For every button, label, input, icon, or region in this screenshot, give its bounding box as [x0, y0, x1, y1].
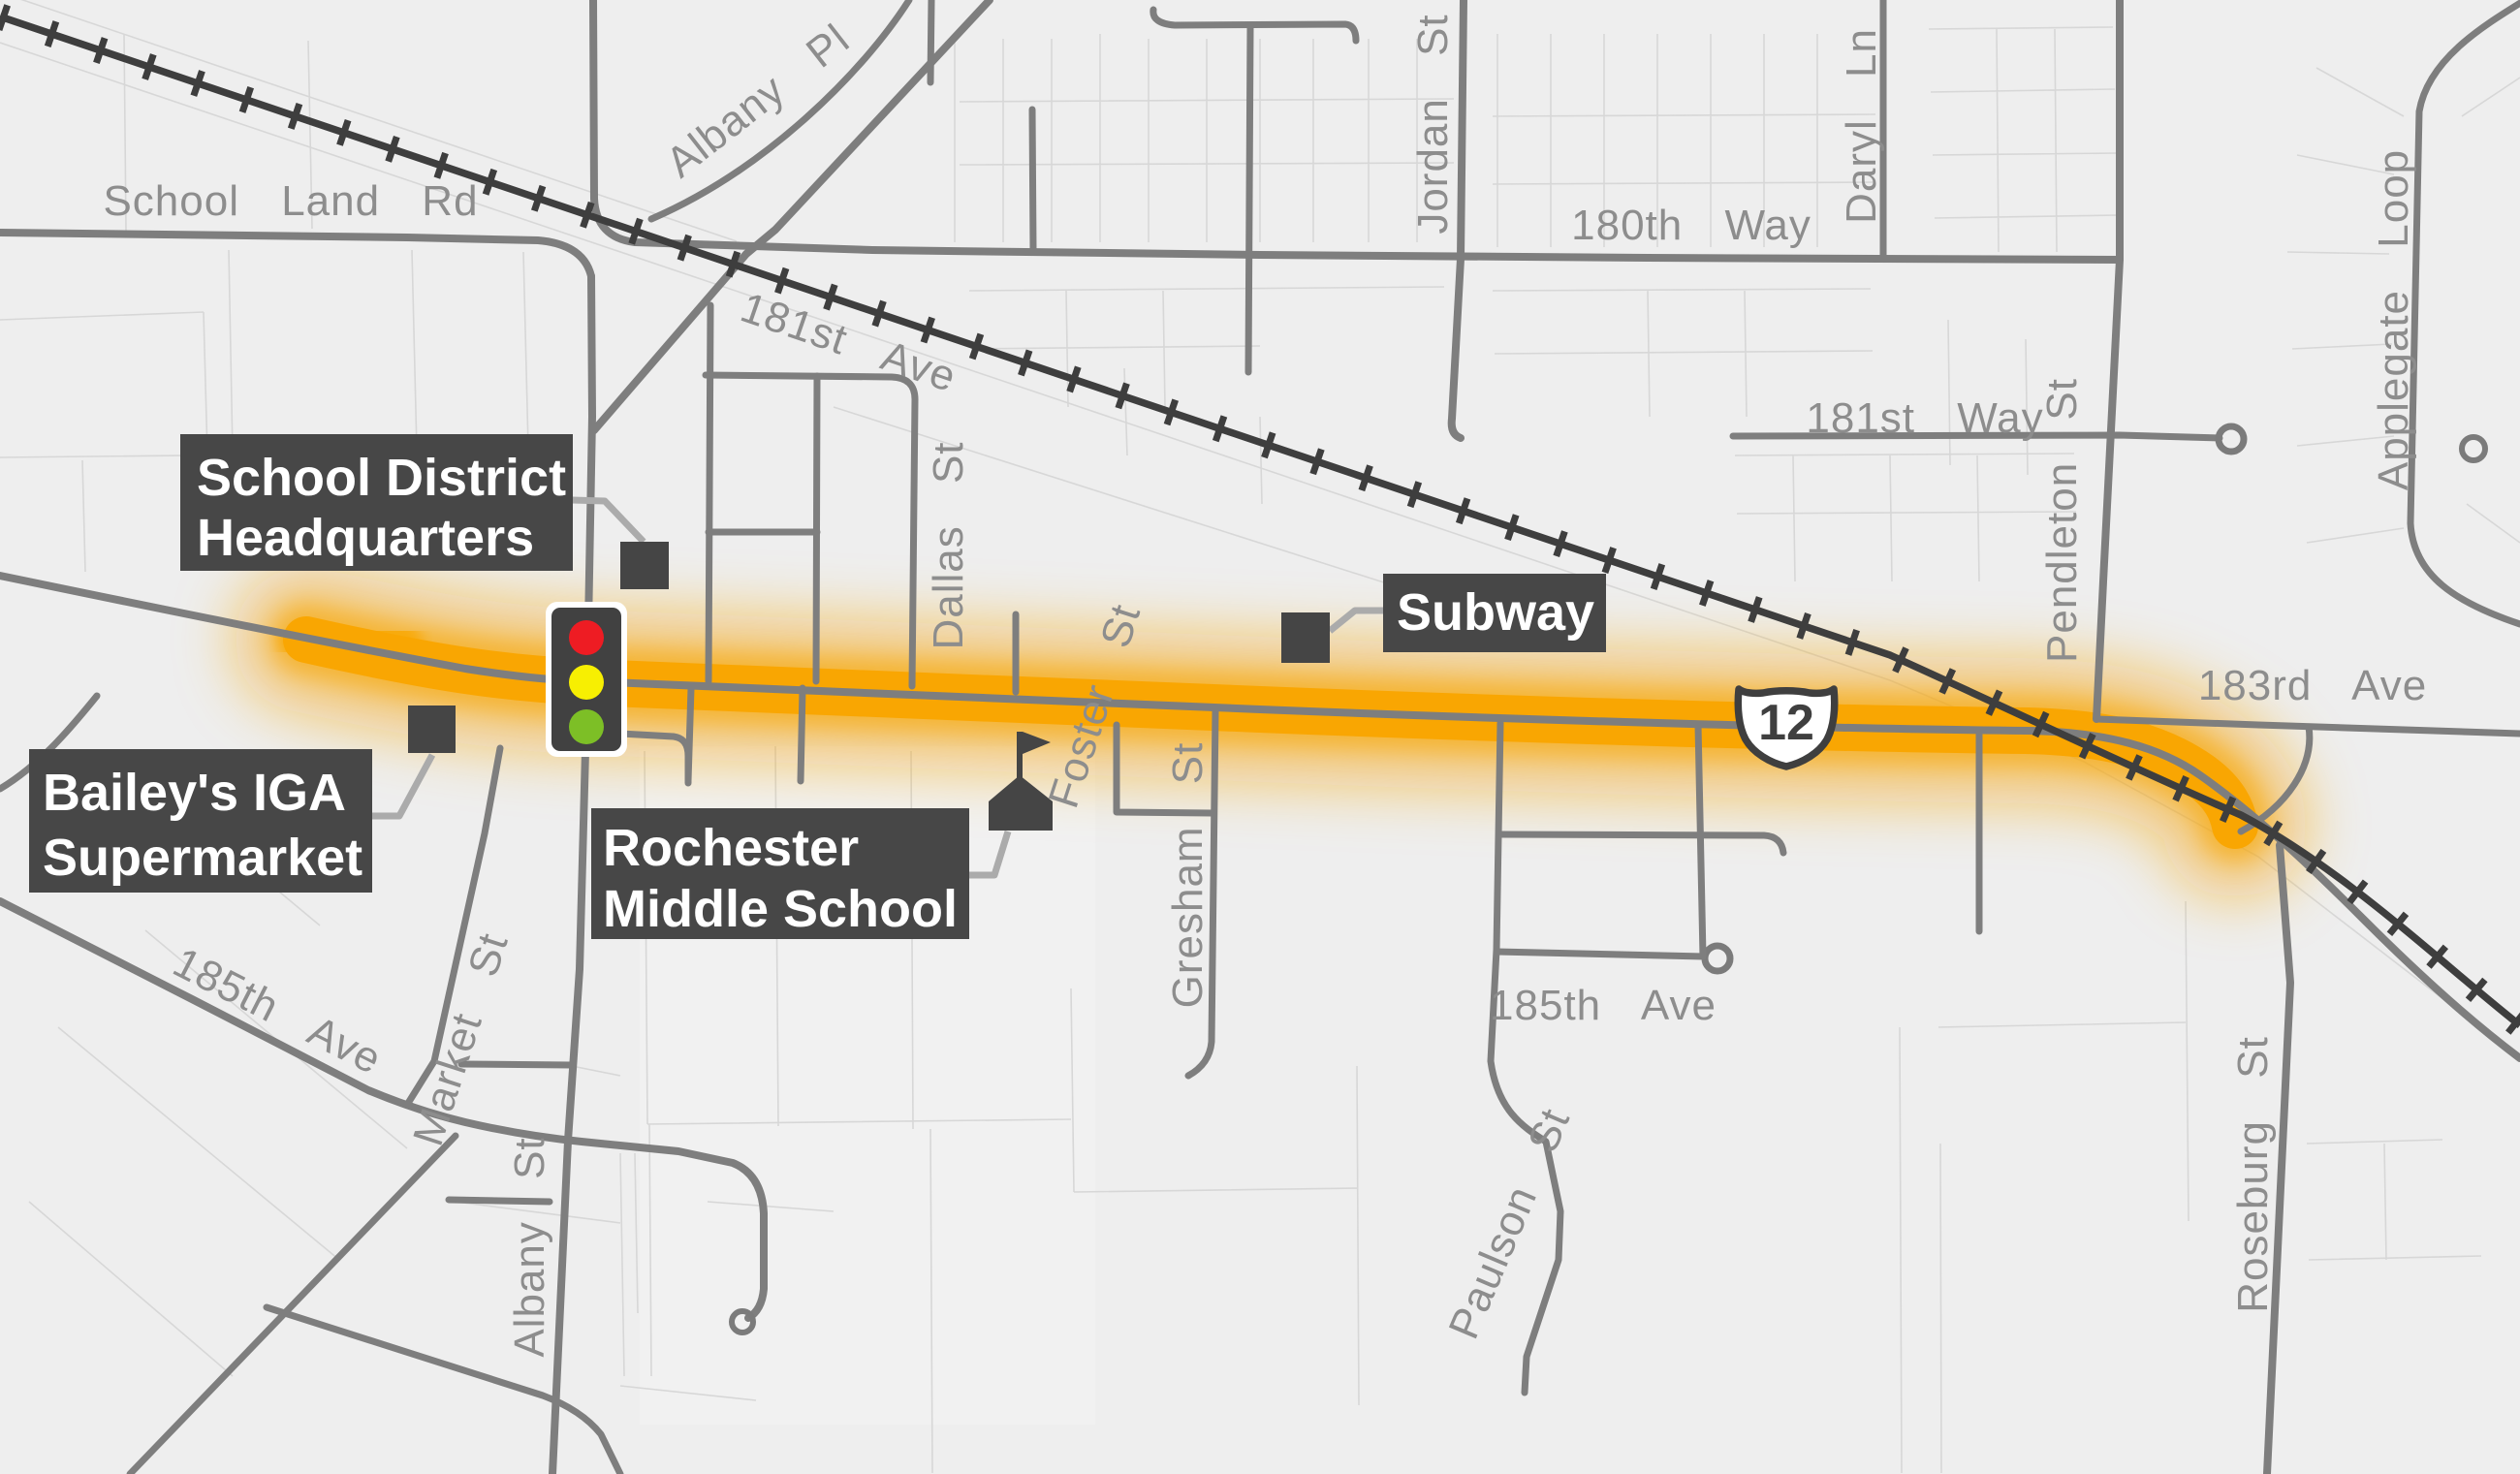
- svg-text:181st Way: 181st Way: [1806, 394, 2043, 442]
- svg-text:185th Ave: 185th Ave: [1490, 982, 1717, 1029]
- svg-text:School Land Rd: School Land Rd: [103, 177, 478, 225]
- svg-text:Albany St: Albany St: [506, 1137, 553, 1357]
- svg-text:Subway: Subway: [1397, 583, 1594, 642]
- svg-text:Middle School: Middle School: [603, 880, 958, 938]
- svg-text:Roseburg St: Roseburg St: [2229, 1036, 2277, 1313]
- svg-text:Bailey's IGA: Bailey's IGA: [43, 764, 346, 822]
- svg-text:180th Way: 180th Way: [1571, 202, 1811, 249]
- svg-text:Daryl Ln: Daryl Ln: [1838, 28, 1885, 224]
- svg-text:Jordan St: Jordan St: [1409, 14, 1457, 234]
- svg-text:Rochester: Rochester: [603, 819, 859, 877]
- svg-text:12: 12: [1758, 695, 1814, 751]
- svg-text:School District: School District: [197, 449, 566, 507]
- svg-text:Headquarters: Headquarters: [197, 509, 534, 567]
- svg-text:183rd Ave: 183rd Ave: [2198, 662, 2427, 709]
- svg-text:Applegate Loop: Applegate Loop: [2370, 149, 2417, 490]
- svg-text:Gresham St: Gresham St: [1164, 742, 1212, 1009]
- svg-text:Pendleton St: Pendleton St: [2038, 378, 2086, 663]
- svg-text:Dallas St: Dallas St: [925, 441, 972, 649]
- svg-text:Supermarket: Supermarket: [43, 829, 362, 887]
